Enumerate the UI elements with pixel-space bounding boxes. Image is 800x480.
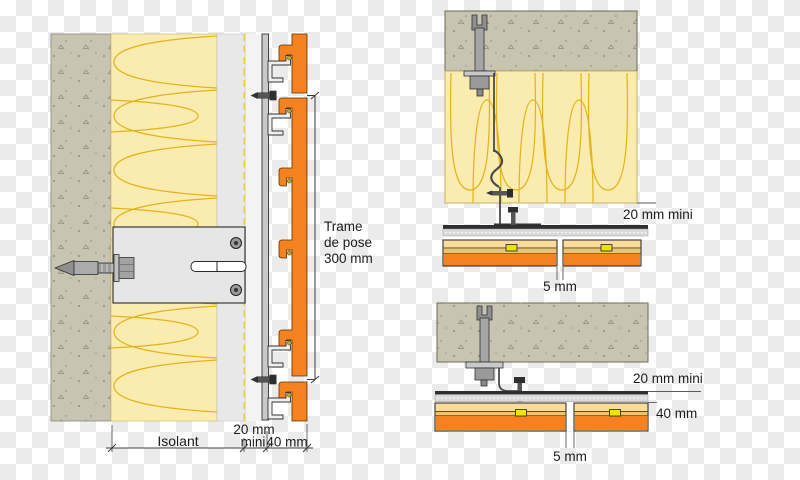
trame-label-line1: Trame — [324, 219, 363, 234]
panel-clip-yellow — [601, 245, 612, 252]
joint-label-2: 5 mm — [543, 279, 577, 294]
fixing-rail-3 — [435, 391, 648, 402]
dimension-trame: Trame de pose 300 mm — [307, 92, 373, 383]
facade-detail-drawing: Trame de pose 300 mm Isolant 20 mm mini … — [0, 0, 800, 480]
panel-clip-yellow — [506, 245, 517, 252]
airgap-label-line2: mini — [241, 435, 266, 450]
concrete-wall — [51, 34, 111, 421]
trame-label-line2: de pose — [324, 235, 372, 250]
panel-clip-yellow — [610, 410, 621, 417]
panel-depth-label: 40 mm — [266, 435, 307, 450]
dimension-bottom: Isolant 20 mm mini 40 mm — [106, 422, 313, 452]
section-horizontal-bottom: 20 mm mini 40 mm 5 mm — [435, 303, 703, 464]
dimension-joint-3: 5 mm — [553, 431, 587, 464]
airgap-label-2: 20 mm mini — [623, 207, 693, 222]
fixing-rail — [262, 34, 269, 420]
concrete-wall-3 — [437, 303, 648, 362]
insulation-layer-2 — [445, 71, 637, 203]
section-horizontal-top: 20 mm mini 5 mm — [443, 11, 693, 294]
air-gap-layer — [246, 34, 262, 421]
section-vertical-detail: Trame de pose 300 mm Isolant 20 mm mini … — [51, 34, 373, 452]
joint-label-3: 5 mm — [553, 449, 587, 464]
panel-section-right-3 — [574, 403, 648, 431]
panel-clip-yellow — [516, 410, 527, 417]
trame-label-line3: 300 mm — [324, 251, 373, 266]
fixing-rail-2 — [443, 225, 648, 236]
cladding-panel-middle — [279, 98, 307, 376]
airgap-label-3: 20 mm mini — [633, 371, 703, 386]
panel-section-left-2 — [443, 240, 557, 266]
panel-section-left-3 — [435, 403, 566, 431]
bracket-slot — [191, 262, 246, 272]
diagram-canvas: Trame de pose 300 mm Isolant 20 mm mini … — [0, 0, 800, 480]
depth-label-3: 40 mm — [656, 406, 697, 421]
isolant-label: Isolant — [157, 433, 198, 449]
panel-section-right-2 — [563, 240, 641, 266]
dimension-joint-2: 5 mm — [543, 267, 577, 294]
